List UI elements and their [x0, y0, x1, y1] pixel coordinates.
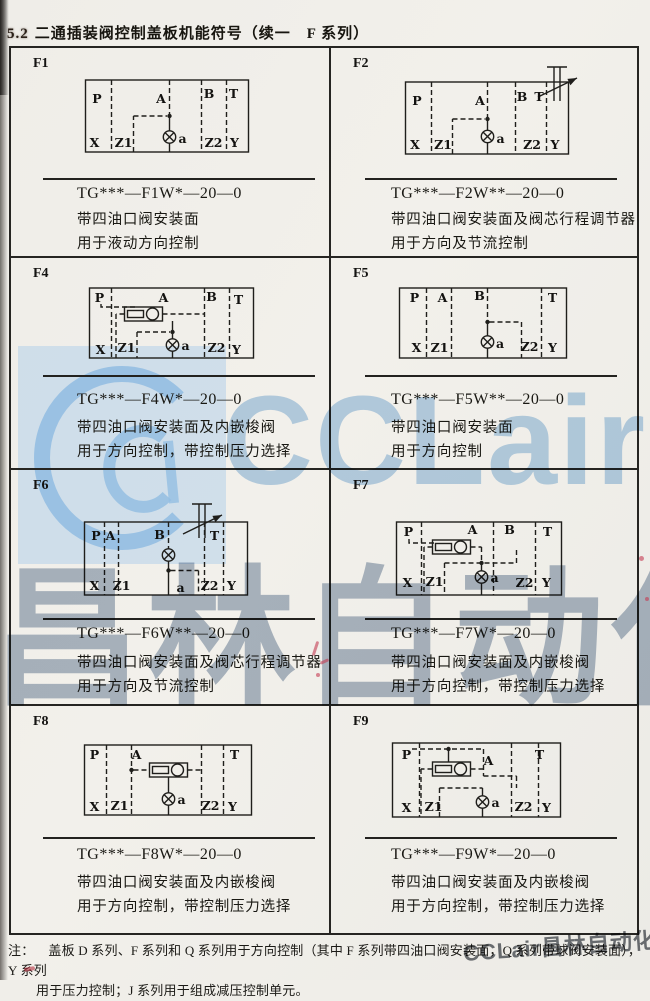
cell-F2: F2 P A B T X Z1 Z2 Y a TG***—F2W**—20—0	[331, 48, 637, 258]
divider	[43, 837, 315, 839]
svg-text:P: P	[412, 93, 422, 108]
description-line1: 带四油口阀安装面及阀芯行程调节器	[391, 208, 636, 229]
svg-text:B: B	[474, 288, 485, 303]
footnote-line1: 注：盖板 D 系列、F 系列和 Q 系列用于方向控制（其中 F 系列带四油口阀安…	[8, 941, 644, 981]
page-title: 5.2二通插装阀控制盖板机能符号（续一 F 系列）	[7, 22, 369, 43]
svg-text:A: A	[467, 522, 478, 537]
pilot-valve-icon	[481, 130, 493, 142]
diagram-F4: P A B T X Z1 Z2 Y a	[88, 286, 263, 361]
svg-text:P: P	[91, 528, 101, 543]
model-code: TG***—F2W**—20—0	[391, 185, 564, 203]
svg-text:X: X	[412, 340, 422, 355]
description-line1: 带四油口阀安装面及内嵌梭阀	[391, 651, 590, 672]
svg-text:B: B	[504, 522, 515, 537]
cell-F5: F5 P A B T X Z1 Z2 Y a TG***—F5W**—20—0 …	[331, 258, 637, 470]
svg-text:a: a	[491, 795, 499, 810]
svg-text:Z2: Z2	[205, 135, 223, 150]
svg-text:X: X	[403, 575, 413, 590]
model-code: TG***—F7W*—20—0	[391, 625, 556, 643]
description-line1: 带四油口阀安装面	[77, 208, 199, 229]
diagram-F5: P A B T X Z1 Z2 Y a	[398, 286, 573, 361]
description-line1: 带四油口阀安装面及内嵌梭阀	[77, 416, 276, 437]
section-number: 5.2	[7, 26, 29, 42]
footnote-label: 注：	[8, 943, 34, 958]
svg-text:P: P	[90, 747, 100, 762]
cell-label: F5	[353, 266, 369, 282]
footnote: 注：盖板 D 系列、F 系列和 Q 系列用于方向控制（其中 F 系列带四油口阀安…	[8, 941, 644, 1001]
description-line1: 带四油口阀安装面及阀芯行程调节器	[77, 651, 322, 672]
svg-text:B: B	[204, 86, 215, 101]
description-line2: 用于方向控制，带控制压力选择	[391, 895, 605, 916]
cell-F4: F4 P A B T X Z1 Z2 Y a	[11, 258, 331, 470]
svg-text:A: A	[155, 91, 166, 106]
cell-F6: F6 P A B T X Z1 Z2 Y a TG***—F6W**—2	[11, 470, 331, 706]
shuttle-valve-icon	[150, 763, 188, 777]
model-code: TG***—F9W*—20—0	[391, 846, 556, 864]
divider	[365, 837, 617, 839]
svg-text:A: A	[437, 290, 448, 305]
svg-text:a: a	[496, 131, 504, 146]
description-line2: 用于方向控制，带控制压力选择	[391, 675, 605, 696]
pilot-valve-icon	[163, 131, 175, 143]
cell-label: F2	[353, 56, 369, 72]
svg-text:X: X	[410, 137, 420, 152]
scan-edge-shadow-top	[0, 0, 9, 95]
svg-text:Z1: Z1	[113, 578, 131, 593]
shuttle-valve-icon	[125, 307, 163, 321]
pilot-valve-icon	[475, 571, 487, 583]
svg-text:a: a	[178, 131, 186, 146]
svg-text:Y: Y	[227, 799, 238, 814]
pilot-valve-icon	[476, 796, 488, 808]
cell-label: F8	[33, 714, 49, 730]
svg-text:Y: Y	[541, 800, 552, 815]
svg-text:Z2: Z2	[201, 578, 219, 593]
svg-text:P: P	[92, 91, 102, 106]
svg-text:a: a	[496, 336, 504, 351]
svg-text:Y: Y	[541, 575, 552, 590]
cell-F7: F7 P A B T X Z1 Z2 Y a	[331, 470, 637, 706]
svg-text:Z1: Z1	[115, 135, 133, 150]
svg-text:P: P	[404, 524, 414, 539]
model-code: TG***—F6W**—20—0	[77, 625, 250, 643]
divider	[43, 375, 315, 377]
divider	[43, 618, 315, 620]
cell-label: F6	[33, 478, 49, 494]
description-line2: 用于方向控制	[391, 440, 483, 461]
svg-text:T: T	[210, 528, 220, 543]
svg-text:B: B	[206, 289, 217, 304]
scan-edge-shadow	[0, 0, 8, 980]
svg-text:T: T	[229, 86, 239, 101]
diagram-F7: P A B T X Z1 Z2 Y a	[395, 519, 570, 597]
svg-text:a: a	[181, 338, 189, 353]
svg-text:Z2: Z2	[523, 137, 541, 152]
svg-text:A: A	[105, 528, 116, 543]
svg-text:P: P	[402, 747, 412, 762]
pilot-valve-icon	[166, 339, 178, 351]
svg-text:Z1: Z1	[111, 798, 129, 813]
cell-label: F4	[33, 266, 49, 282]
svg-text:Y: Y	[547, 340, 558, 355]
svg-text:X: X	[90, 578, 100, 593]
model-code: TG***—F1W*—20—0	[77, 185, 242, 203]
shuttle-valve-icon	[433, 540, 471, 554]
divider	[43, 178, 315, 180]
svg-text:Z1: Z1	[434, 137, 452, 152]
svg-text:Z1: Z1	[431, 340, 449, 355]
svg-text:Y: Y	[550, 137, 561, 152]
diagram-F9: P A T X Z1 Z2 Y a	[391, 739, 571, 821]
svg-text:X: X	[402, 800, 412, 815]
svg-text:Z2: Z2	[208, 340, 226, 355]
svg-text:X: X	[90, 799, 100, 814]
cell-F8: F8 P A T X Z1 Z2 Y a TG***—F8W*—20—0 带四油…	[11, 706, 331, 933]
description-line2: 用于方向及节流控制	[77, 675, 215, 696]
description-line1: 带四油口阀安装面及内嵌梭阀	[391, 871, 590, 892]
svg-text:B: B	[517, 89, 528, 104]
svg-text:Z1: Z1	[425, 799, 443, 814]
svg-text:a: a	[177, 792, 185, 807]
svg-text:Y: Y	[226, 578, 237, 593]
pilot-valve-icon	[162, 549, 174, 561]
stroke-adjuster-icon	[538, 67, 577, 101]
description-line2: 用于方向控制，带控制压力选择	[77, 440, 291, 461]
svg-text:Z2: Z2	[515, 799, 533, 814]
diagram-F6: P A B T X Z1 Z2 Y a	[83, 502, 268, 597]
divider	[365, 618, 617, 620]
svg-text:Y: Y	[231, 342, 242, 357]
pilot-valve-icon	[481, 336, 493, 348]
footnote-line2: 用于压力控制；J 系列用于组成减压控制单元。	[8, 981, 644, 1001]
svg-text:T: T	[548, 290, 558, 305]
svg-text:Z2: Z2	[202, 798, 220, 813]
description-line1: 带四油口阀安装面	[391, 416, 513, 437]
svg-text:T: T	[535, 747, 545, 762]
model-code: TG***—F4W*—20—0	[77, 391, 242, 409]
svg-text:X: X	[90, 135, 100, 150]
svg-text:T: T	[234, 292, 244, 307]
cell-label: F7	[353, 478, 369, 494]
svg-text:Y: Y	[229, 135, 240, 150]
diagram-F1: P A B T X Z1 Z2 Y a	[84, 77, 259, 157]
svg-text:X: X	[96, 342, 106, 357]
svg-text:Z1: Z1	[118, 340, 136, 355]
svg-text:A: A	[131, 747, 142, 762]
svg-text:T: T	[230, 747, 240, 762]
divider	[365, 178, 617, 180]
description-line1: 带四油口阀安装面及内嵌梭阀	[77, 871, 276, 892]
description-line2: 用于方向控制，带控制压力选择	[77, 895, 291, 916]
symbol-table: F1 P A B T X Z1 Z2 Y a TG***—F1W*—20—0 带…	[9, 46, 639, 935]
svg-text:a: a	[490, 570, 498, 585]
cell-label: F9	[353, 714, 369, 730]
cell-F9: F9 P A T X Z1 Z2 Y	[331, 706, 637, 933]
shuttle-valve-icon	[433, 762, 471, 776]
svg-text:A: A	[158, 290, 169, 305]
svg-text:A: A	[483, 753, 494, 768]
diagram-F8: P A T X Z1 Z2 Y a	[83, 743, 258, 818]
model-code: TG***—F5W**—20—0	[391, 391, 564, 409]
model-code: TG***—F8W*—20—0	[77, 846, 242, 864]
svg-text:Z2: Z2	[516, 575, 534, 590]
svg-text:T: T	[543, 524, 553, 539]
svg-text:P: P	[95, 290, 105, 305]
svg-text:a: a	[176, 580, 184, 595]
divider	[365, 375, 617, 377]
svg-text:Z1: Z1	[426, 574, 444, 589]
cell-F1: F1 P A B T X Z1 Z2 Y a TG***—F1W*—20—0 带…	[11, 48, 331, 258]
diagram-F2: P A B T X Z1 Z2 Y a	[404, 64, 589, 159]
svg-text:P: P	[410, 290, 420, 305]
svg-text:A: A	[474, 93, 485, 108]
cell-label: F1	[33, 56, 49, 72]
description-line2: 用于方向及节流控制	[391, 232, 529, 253]
svg-text:T: T	[534, 89, 544, 104]
svg-text:Z2: Z2	[521, 339, 539, 354]
section-title-text: 二通插装阀控制盖板机能符号（续一 F 系列）	[35, 26, 369, 42]
svg-text:B: B	[154, 527, 165, 542]
pilot-valve-icon	[162, 793, 174, 805]
description-line2: 用于液动方向控制	[77, 232, 199, 253]
